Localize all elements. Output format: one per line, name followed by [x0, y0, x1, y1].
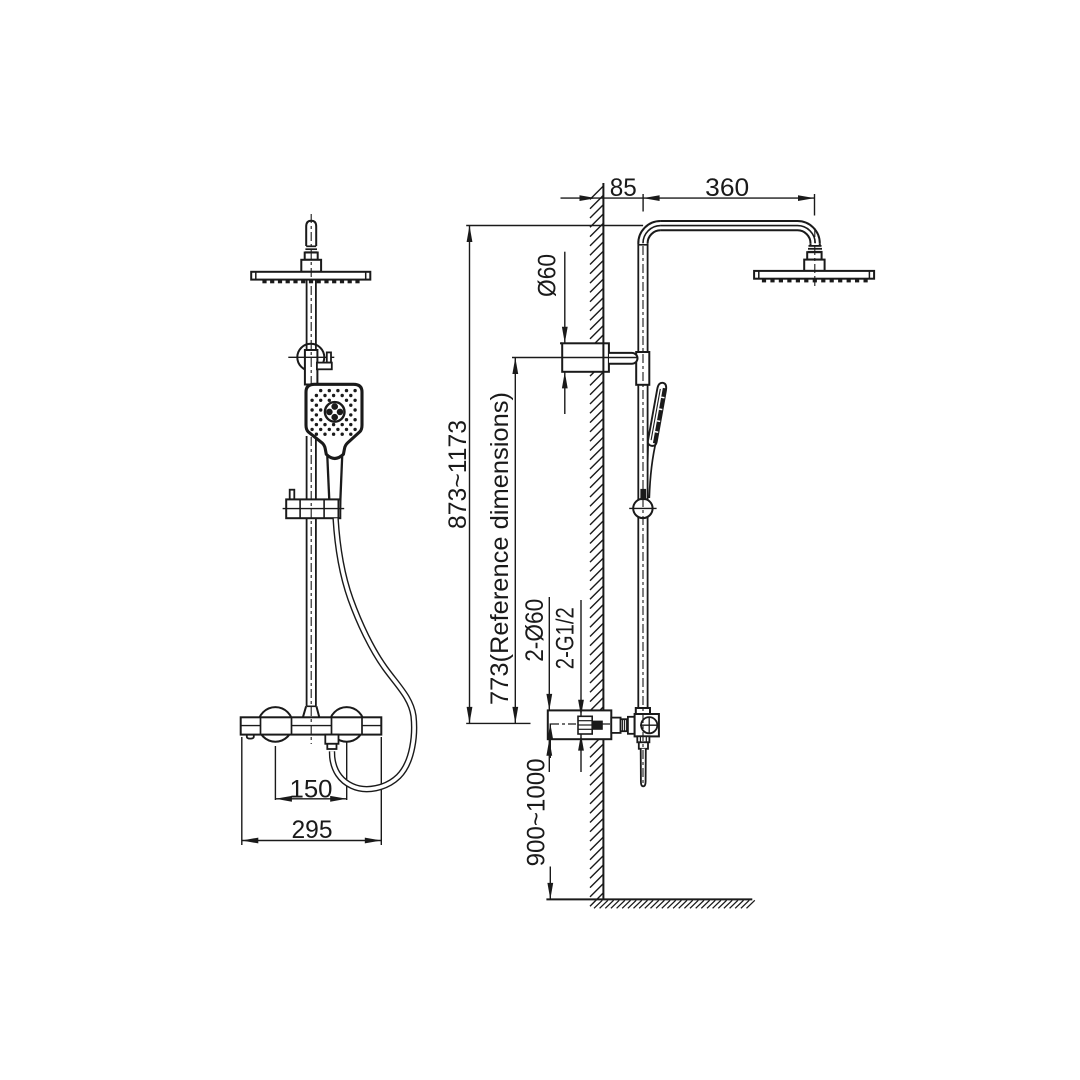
svg-text:2-Ø60: 2-Ø60 — [521, 599, 549, 662]
svg-text:873~1173: 873~1173 — [444, 420, 472, 529]
svg-text:150: 150 — [290, 776, 333, 804]
svg-text:900~1000: 900~1000 — [523, 758, 551, 866]
svg-text:773(Reference dimensions): 773(Reference dimensions) — [486, 392, 514, 705]
svg-text:360: 360 — [705, 174, 749, 202]
svg-text:Ø60: Ø60 — [534, 254, 562, 297]
svg-text:85: 85 — [610, 174, 637, 202]
svg-text:295: 295 — [292, 816, 333, 844]
svg-text:2-G1/2: 2-G1/2 — [552, 607, 580, 669]
